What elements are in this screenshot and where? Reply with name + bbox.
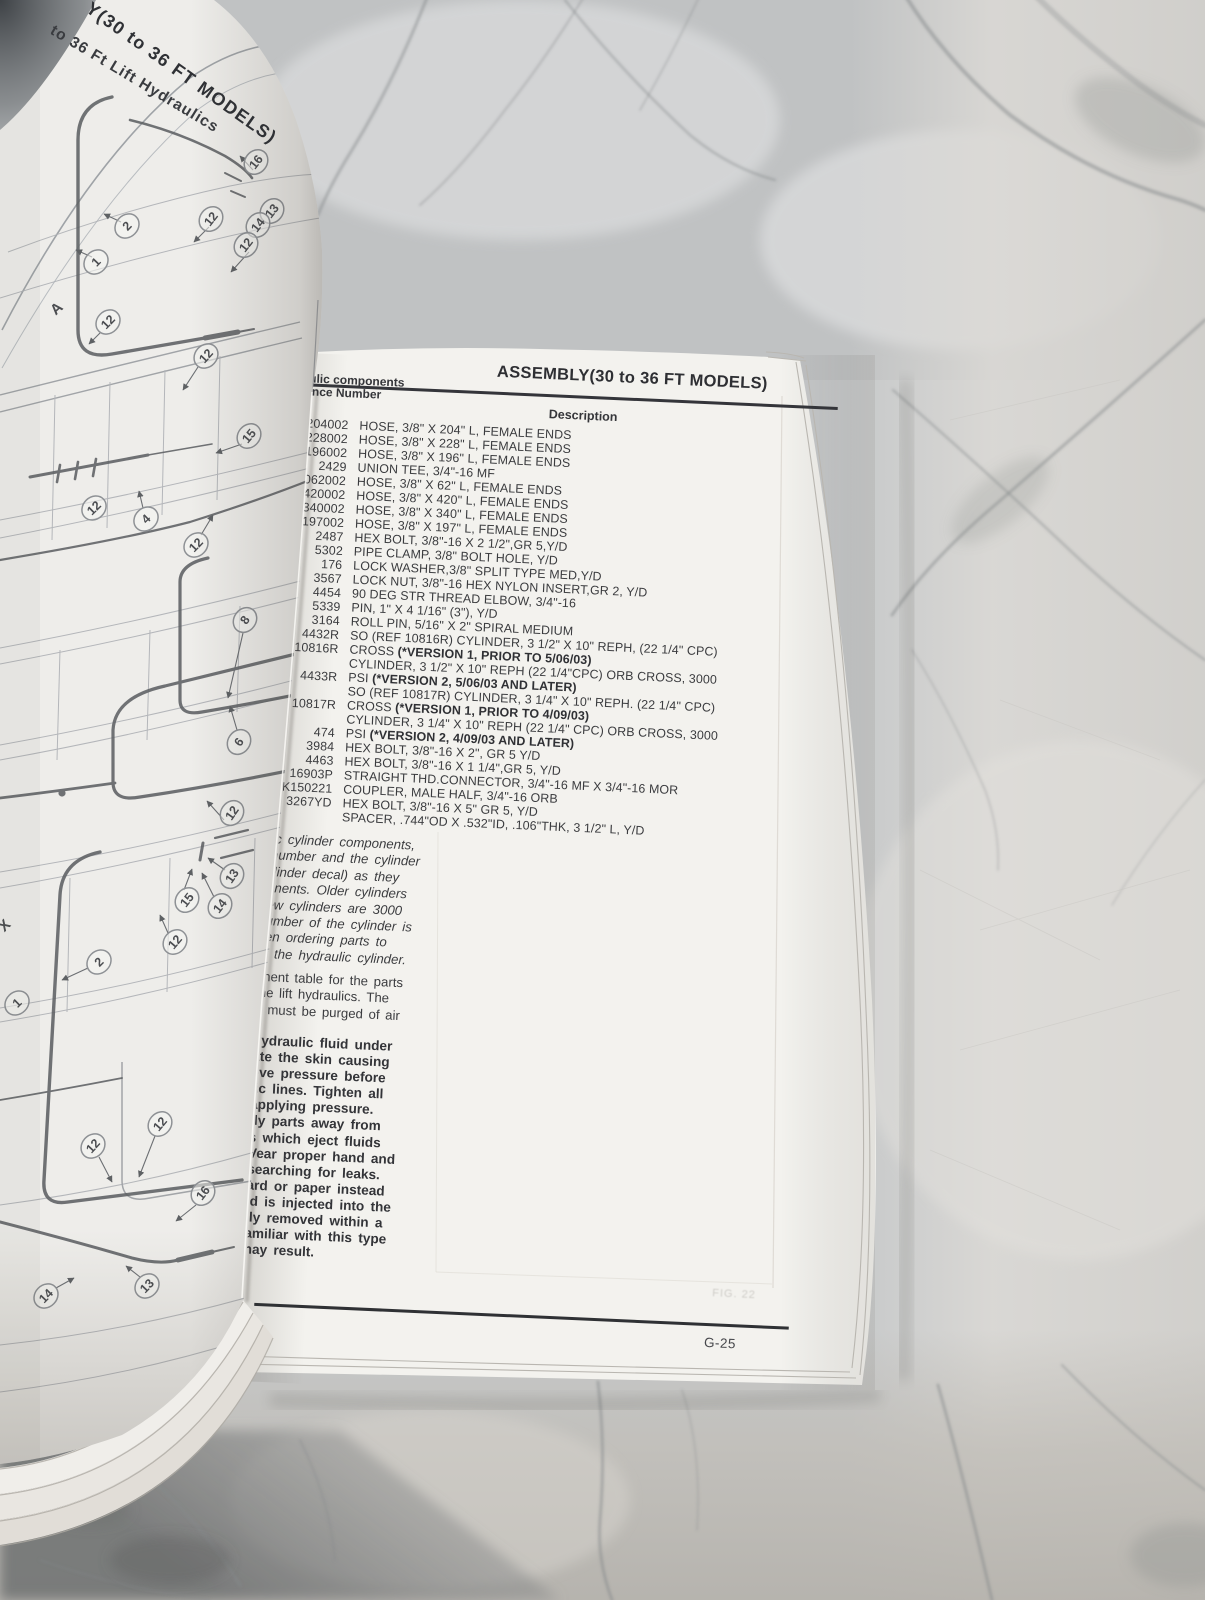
book-photo: draulic components ference Number ASSEMB… — [0, 0, 1205, 1600]
left-page: 161314121221A121215124128612131514X12211… — [0, 0, 1205, 1600]
